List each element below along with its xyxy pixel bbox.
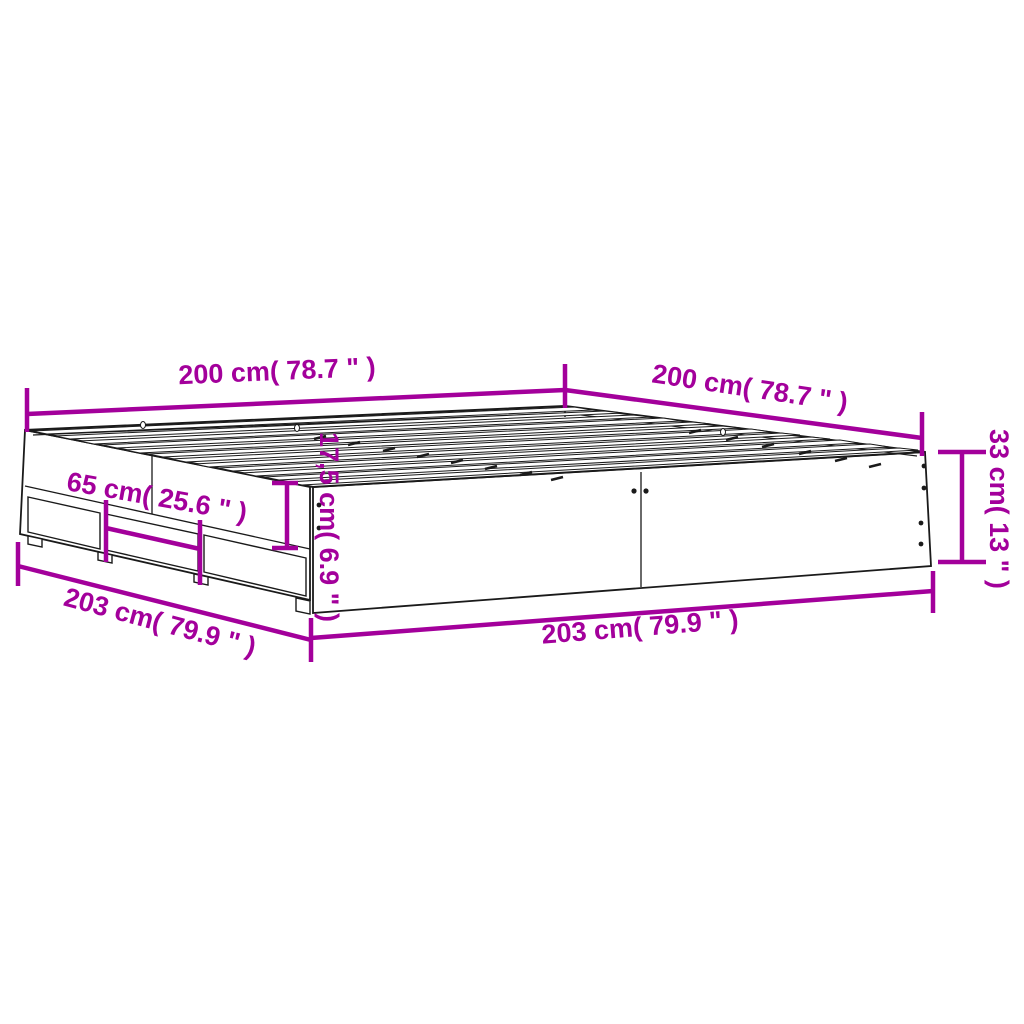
screw-dot: [922, 486, 927, 491]
bed-frame-dimension-diagram: 200 cm( 78.7 " ) 200 cm( 78.7 " ) 33 cm(…: [0, 0, 1024, 1024]
screw-dot: [643, 488, 648, 493]
dim-height-right: [938, 452, 986, 562]
screw-dot: [919, 542, 924, 547]
label-rail-height: 17,5 cm( 6.9 " ): [314, 432, 344, 622]
label-height-right: 33 cm( 13 " ): [984, 429, 1014, 589]
screw-dot: [919, 521, 924, 526]
bed-foot: [296, 598, 310, 614]
screw-dot: [631, 488, 636, 493]
screw-dot: [922, 464, 927, 469]
label-depth-top-right: 200 cm( 78.7 " ): [650, 359, 850, 418]
label-length-bottom-front: 203 cm( 79.9 " ): [540, 604, 739, 649]
label-length-bottom-left: 203 cm( 79.9 " ): [61, 582, 259, 662]
dimension-diagram-canvas: 200 cm( 78.7 " ) 200 cm( 78.7 " ) 33 cm(…: [0, 0, 1024, 1024]
label-width-top-left: 200 cm( 78.7 " ): [178, 352, 377, 391]
